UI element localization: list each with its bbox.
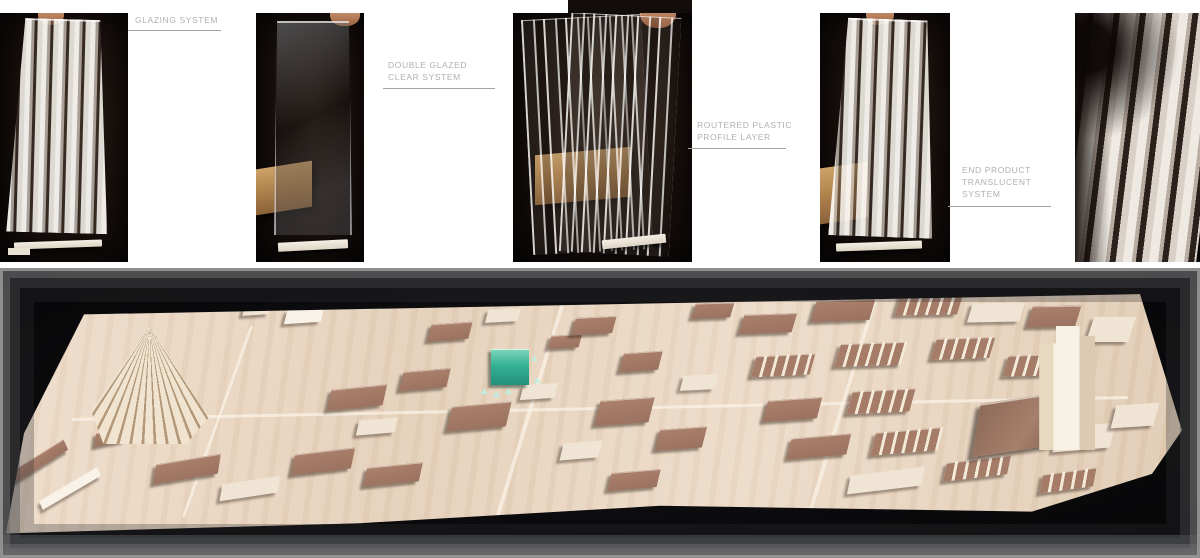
model-building [594,397,654,426]
photo-bleed [568,0,692,13]
model-building [283,307,323,323]
caption-line: GLAZING SYSTEM [135,14,221,26]
caption-line: ROUTERED PLASTIC [697,119,786,131]
model-building [548,334,582,349]
caption-line: END PRODUCT [962,164,1051,176]
photo-closeup-detail [1075,13,1200,262]
photo-glazing-system [0,13,128,262]
model-building [399,368,451,391]
model-building [654,426,706,450]
model-building [571,316,616,335]
model-building [810,299,875,322]
ribbed-panel [5,18,115,235]
panel-base [278,239,348,252]
model-building [691,302,734,318]
model-building [762,397,821,422]
photo-frame-band [0,535,1200,544]
photo-end-product [820,13,950,262]
photo-shadow [1075,13,1200,262]
panel-base [836,241,922,252]
photo-frame-band [0,544,1200,558]
caption-glazing-system: GLAZING SYSTEM [128,14,221,31]
model-building [679,374,718,391]
caption-routered-plastic: ROUTERED PLASTIC PROFILE LAYER [688,119,786,149]
photo-routered-profile [513,13,692,262]
photo-double-glazed-clear [256,13,364,262]
panel-foot [8,248,30,255]
model-building [619,351,663,373]
model-building [485,308,521,323]
caption-end-product: END PRODUCT TRANSLUCENT SYSTEM [948,164,1051,207]
profile-sheet [559,13,681,257]
model-building [930,337,995,360]
process-photo-strip: GLAZING SYSTEM DOUBLE GLAZED CLEAR SYSTE… [0,0,1200,268]
model-building [520,383,559,400]
clear-panel [274,21,352,235]
model-building [834,342,907,367]
stepped-tower [1039,326,1095,450]
model-building [894,294,963,316]
portfolio-sheet: GLAZING SYSTEM DOUBLE GLAZED CLEAR SYSTE… [0,0,1200,558]
model-building [1026,305,1081,327]
caption-line: SYSTEM [962,188,1051,200]
caption-double-glazed: DOUBLE GLAZED CLEAR SYSTEM [383,59,495,89]
model-building [1110,403,1159,429]
photo-inner [513,13,692,262]
caption-line: TRANSLUCENT [962,176,1051,188]
site-model-photo [0,268,1200,558]
model-building [427,322,472,342]
model-building [242,302,272,316]
caption-line: CLEAR SYSTEM [388,71,495,83]
ribbed-panel [828,17,940,238]
caption-line: PROFILE LAYER [697,131,786,143]
model-building [739,313,797,334]
proposal-building-green [491,349,529,385]
model-building [967,302,1025,322]
caption-line: DOUBLE GLAZED [388,59,495,71]
model-building [846,388,915,414]
model-building [750,353,815,377]
model-baseboard [0,268,1200,558]
